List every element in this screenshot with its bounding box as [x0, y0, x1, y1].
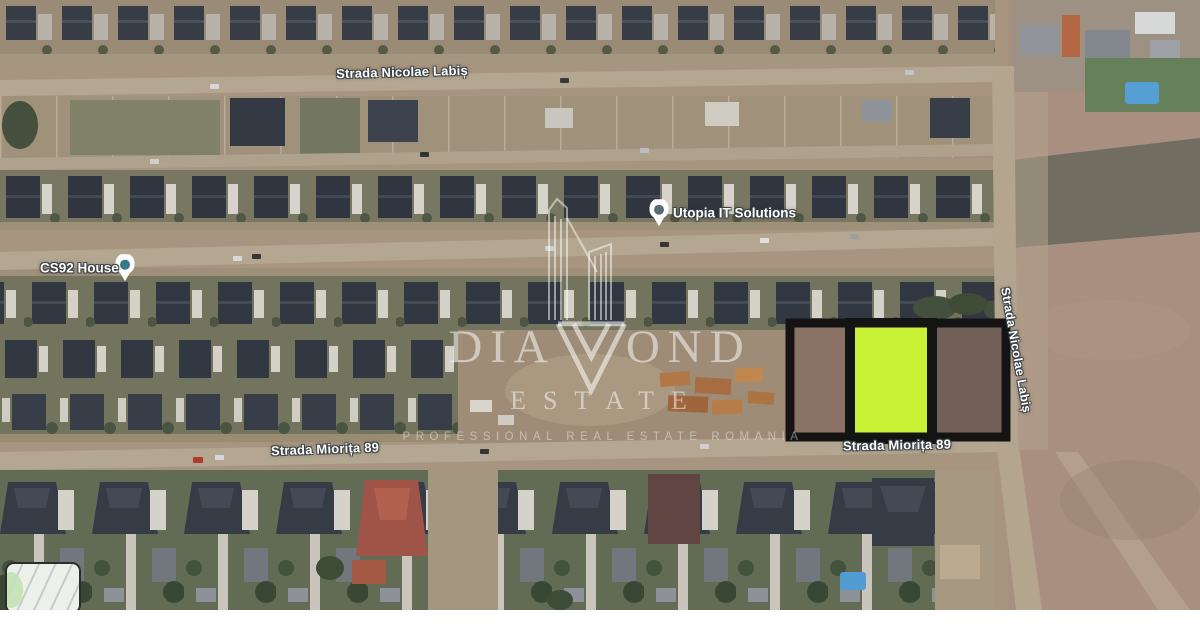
poi-label-utopia[interactable]: Utopia IT Solutions [673, 206, 796, 221]
satellite-imagery [0, 0, 1200, 610]
minimap-inset[interactable] [5, 562, 81, 610]
bottom-white-strip [0, 610, 1200, 635]
satellite-map[interactable]: Strada Nicolae Labiș Strada Miorița 89 S… [0, 0, 1200, 610]
haze-overlay [0, 0, 1200, 610]
screenshot: Strada Nicolae Labiș Strada Miorița 89 S… [0, 0, 1200, 635]
poi-label-cs92[interactable]: CS92 House [40, 261, 119, 276]
utopia-pin-icon[interactable] [648, 199, 670, 227]
